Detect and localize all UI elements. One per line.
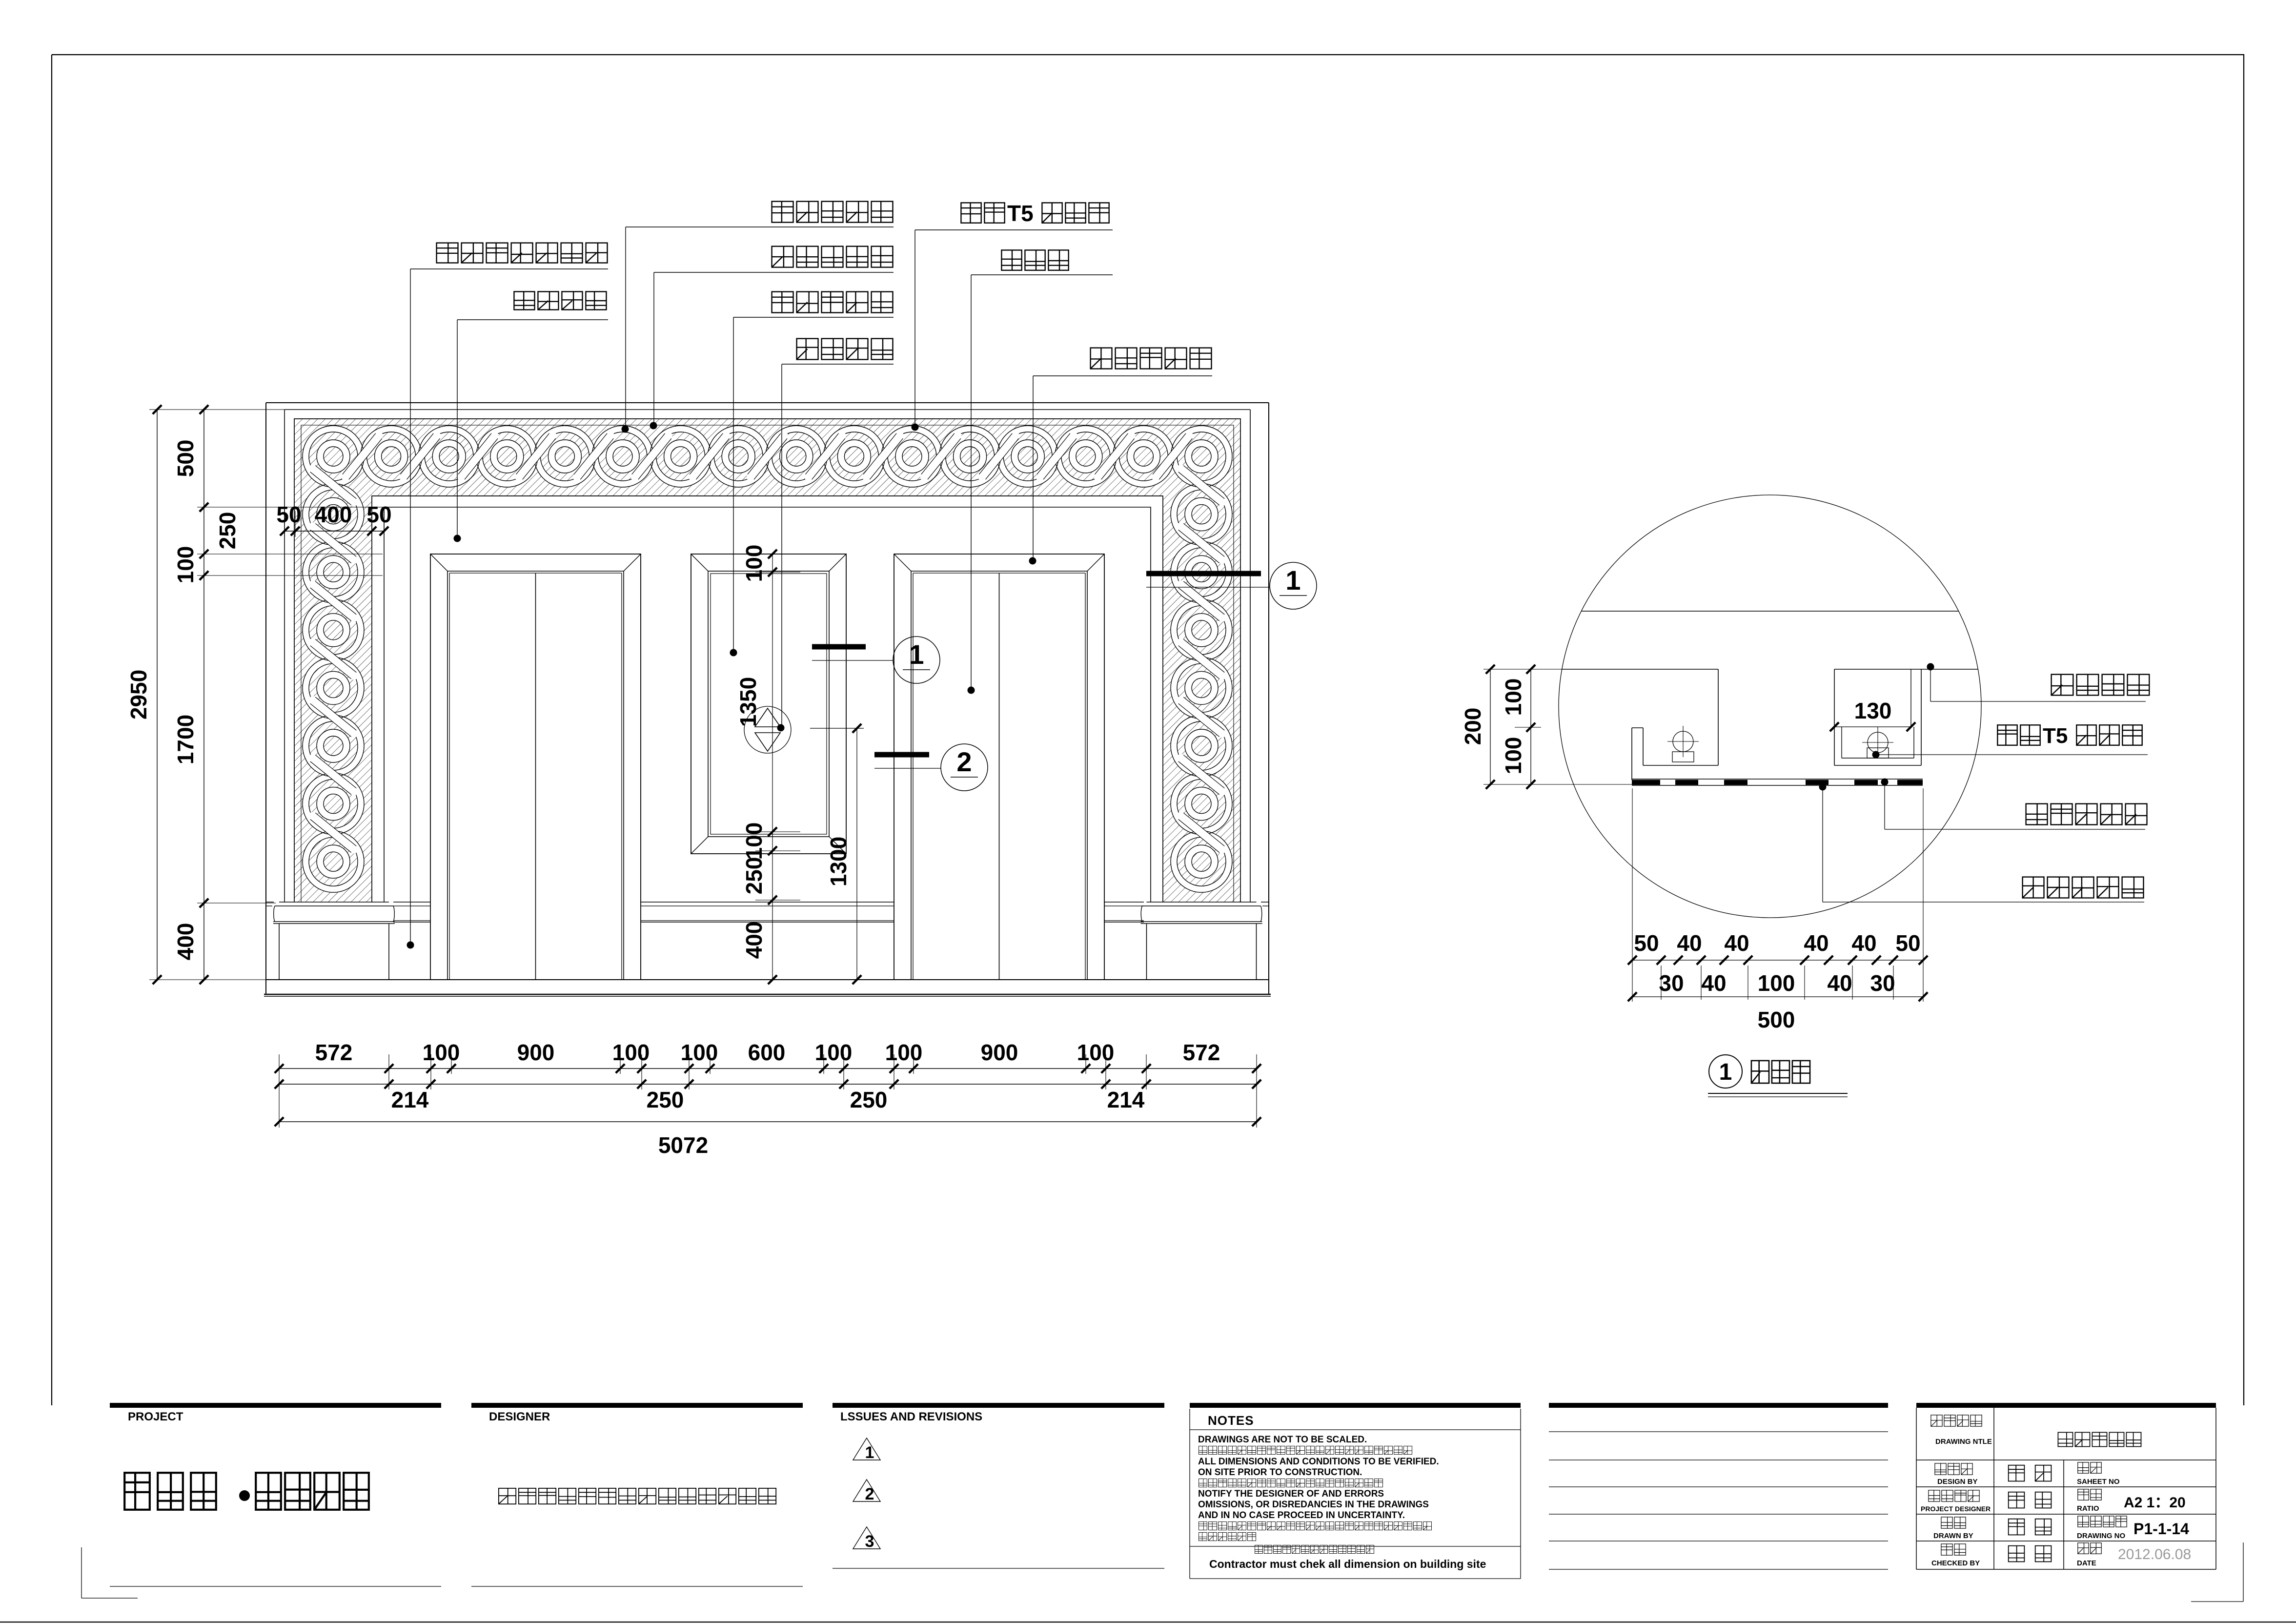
svg-text:214: 214	[391, 1087, 429, 1112]
svg-text:100: 100	[741, 545, 767, 582]
svg-text:250: 250	[215, 512, 240, 550]
svg-text:50: 50	[1895, 930, 1920, 956]
svg-text:DRAWN BY: DRAWN BY	[1933, 1532, 1973, 1540]
svg-text:40: 40	[1677, 930, 1702, 956]
svg-text:NOTES: NOTES	[1208, 1413, 1254, 1428]
svg-text:NOTIFY THE DESIGNER OF AND ERR: NOTIFY THE DESIGNER OF AND ERRORS	[1198, 1489, 1384, 1499]
svg-text:40: 40	[1827, 970, 1852, 996]
svg-text:DRAWINGS ARE NOT TO BE SCALED.: DRAWINGS ARE NOT TO BE SCALED.	[1198, 1435, 1367, 1445]
svg-text:100: 100	[741, 822, 767, 860]
svg-text:130: 130	[1854, 698, 1892, 723]
svg-text:RATIO: RATIO	[2077, 1504, 2099, 1513]
svg-text:50: 50	[366, 502, 391, 527]
svg-text:DRAWING NO: DRAWING NO	[2077, 1532, 2125, 1540]
svg-text:1300: 1300	[826, 837, 851, 886]
svg-text:DESIGNER: DESIGNER	[489, 1410, 550, 1423]
svg-text:30: 30	[1870, 970, 1895, 996]
svg-text:250: 250	[647, 1087, 684, 1112]
svg-text:1700: 1700	[173, 715, 198, 764]
svg-text:100: 100	[1758, 970, 1795, 996]
svg-text:A2 1：20: A2 1：20	[2124, 1495, 2186, 1511]
svg-text:572: 572	[315, 1040, 353, 1065]
svg-text:3: 3	[865, 1532, 874, 1551]
svg-text:40: 40	[1701, 970, 1726, 996]
svg-text:100: 100	[885, 1040, 923, 1065]
svg-text:400: 400	[741, 922, 767, 959]
svg-text:40: 40	[1724, 930, 1749, 956]
svg-text:DRAWING NTLE: DRAWING NTLE	[1935, 1438, 1992, 1446]
svg-text:900: 900	[517, 1040, 555, 1065]
svg-text:250: 250	[741, 857, 767, 895]
svg-text:100: 100	[1077, 1040, 1115, 1065]
svg-text:AND IN NO CASE PROCEED IN UNCE: AND IN NO CASE PROCEED IN UNCERTAINTY.	[1198, 1510, 1405, 1521]
svg-text:572: 572	[1183, 1040, 1220, 1065]
svg-text:P1-1-14: P1-1-14	[2133, 1520, 2189, 1538]
svg-text:2012.06.08: 2012.06.08	[2118, 1546, 2191, 1562]
svg-text:DESIGN BY: DESIGN BY	[1937, 1478, 1978, 1486]
svg-text:100: 100	[612, 1040, 650, 1065]
svg-text:OMISSIONS, OR DISREDANCIES IN: OMISSIONS, OR DISREDANCIES IN THE DRAWIN…	[1198, 1500, 1429, 1510]
svg-text:400: 400	[173, 923, 198, 961]
svg-text:CHECKED BY: CHECKED BY	[1931, 1559, 1980, 1567]
svg-text:ALL DIMENSIONS AND CONDITIONS: ALL DIMENSIONS AND CONDITIONS TO BE VERI…	[1198, 1457, 1439, 1467]
svg-text:5072: 5072	[658, 1132, 708, 1158]
svg-text:100: 100	[681, 1040, 718, 1065]
svg-text:1: 1	[909, 639, 924, 670]
svg-text:PROJECT DESIGNER: PROJECT DESIGNER	[1921, 1505, 1991, 1513]
svg-text:50: 50	[1634, 930, 1659, 956]
svg-text:2: 2	[865, 1485, 874, 1503]
svg-text:1: 1	[1719, 1059, 1732, 1085]
svg-text:1350: 1350	[735, 677, 761, 727]
svg-text:T5: T5	[2043, 724, 2068, 748]
svg-text:250: 250	[850, 1087, 888, 1112]
svg-text:100: 100	[173, 546, 198, 584]
svg-text:Contractor must chek all dimen: Contractor must chek all dimension on bu…	[1209, 1558, 1486, 1570]
svg-text:1: 1	[865, 1443, 874, 1462]
svg-text:DATE: DATE	[2077, 1559, 2096, 1567]
svg-text:100: 100	[1501, 678, 1526, 716]
svg-text:ON SITE PRIOR TO CONSTRUCTION.: ON SITE PRIOR TO CONSTRUCTION.	[1198, 1467, 1362, 1478]
svg-text:500: 500	[1758, 1007, 1795, 1032]
svg-text:900: 900	[981, 1040, 1018, 1065]
svg-text:40: 40	[1804, 930, 1829, 956]
svg-text:30: 30	[1659, 970, 1684, 996]
svg-text:100: 100	[815, 1040, 853, 1065]
svg-text:2: 2	[956, 746, 972, 777]
svg-text:600: 600	[748, 1040, 786, 1065]
svg-text:214: 214	[1107, 1087, 1145, 1112]
svg-text:100: 100	[1501, 737, 1526, 775]
svg-text:50: 50	[276, 502, 301, 527]
svg-text:PROJECT: PROJECT	[128, 1410, 183, 1423]
svg-text:LSSUES AND REVISIONS: LSSUES AND REVISIONS	[840, 1410, 982, 1423]
svg-text:400: 400	[315, 502, 352, 527]
svg-text:T5: T5	[1007, 201, 1034, 226]
svg-text:SAHEET NO: SAHEET NO	[2077, 1478, 2120, 1486]
svg-text:1: 1	[1285, 565, 1300, 596]
svg-text:200: 200	[1460, 708, 1485, 745]
svg-text:500: 500	[173, 440, 198, 477]
svg-text:40: 40	[1851, 930, 1876, 956]
svg-text:100: 100	[423, 1040, 460, 1065]
svg-text:2950: 2950	[126, 670, 151, 719]
